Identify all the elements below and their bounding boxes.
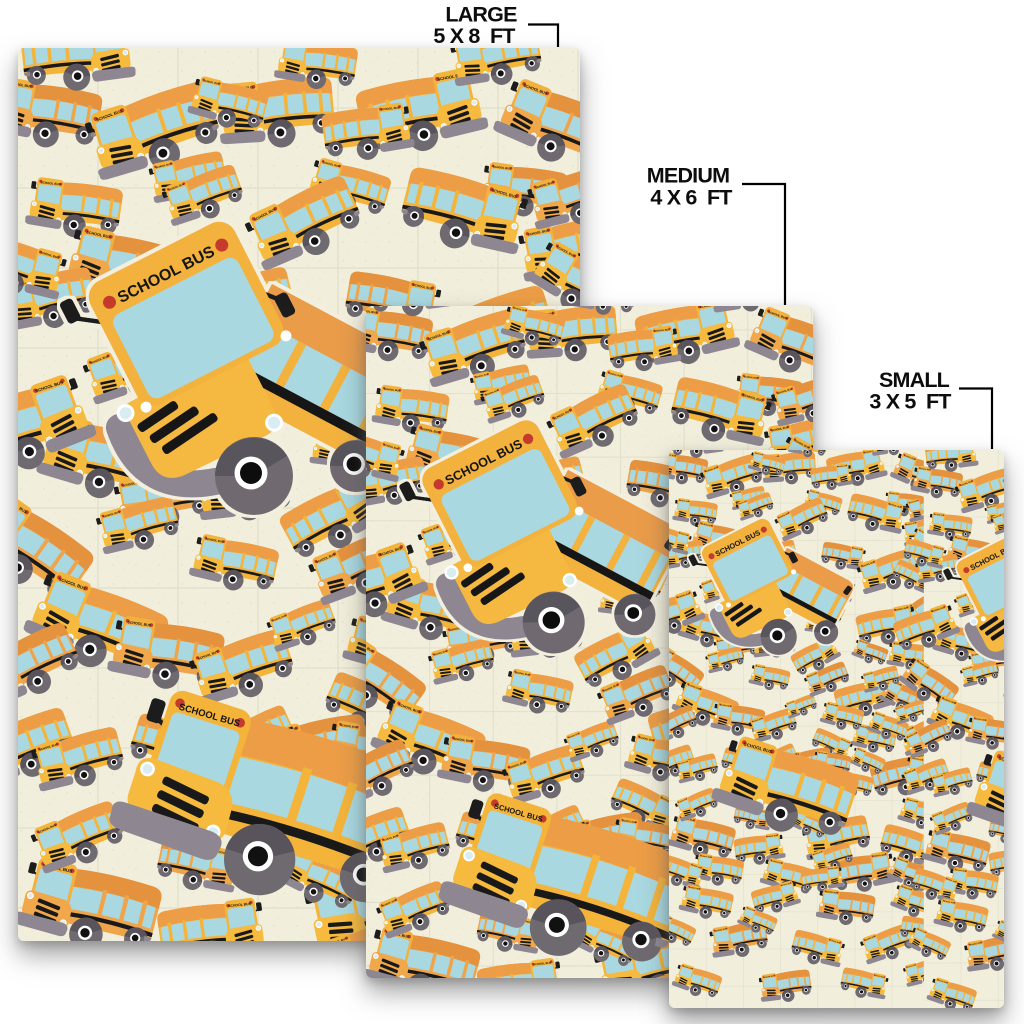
svg-text:SMALL: SMALL: [879, 368, 950, 392]
svg-text:LARGE: LARGE: [445, 3, 517, 27]
svg-text:5 X 8 FT: 5 X 8 FT: [433, 24, 515, 48]
svg-text:MEDIUM: MEDIUM: [647, 164, 729, 188]
svg-text:3 X 5 FT: 3 X 5 FT: [869, 390, 951, 414]
svg-text:4 X 6 FT: 4 X 6 FT: [650, 186, 732, 210]
